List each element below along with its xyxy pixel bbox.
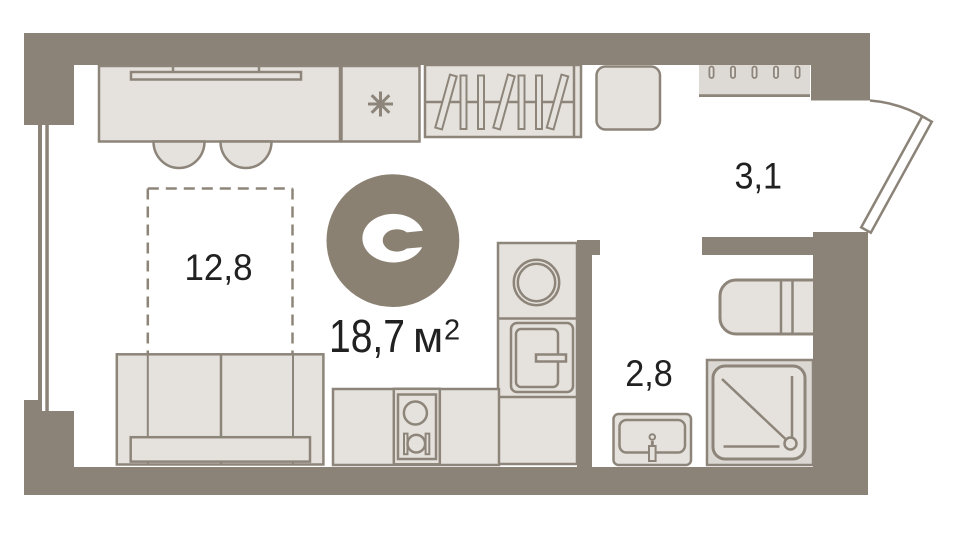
svg-text:2: 2	[444, 315, 460, 347]
svg-text:3,1: 3,1	[735, 156, 783, 197]
svg-text:2,8: 2,8	[625, 353, 673, 394]
svg-text:18,7: 18,7	[329, 310, 405, 362]
svg-text:м: м	[413, 313, 443, 362]
svg-text:12,8: 12,8	[185, 247, 253, 288]
